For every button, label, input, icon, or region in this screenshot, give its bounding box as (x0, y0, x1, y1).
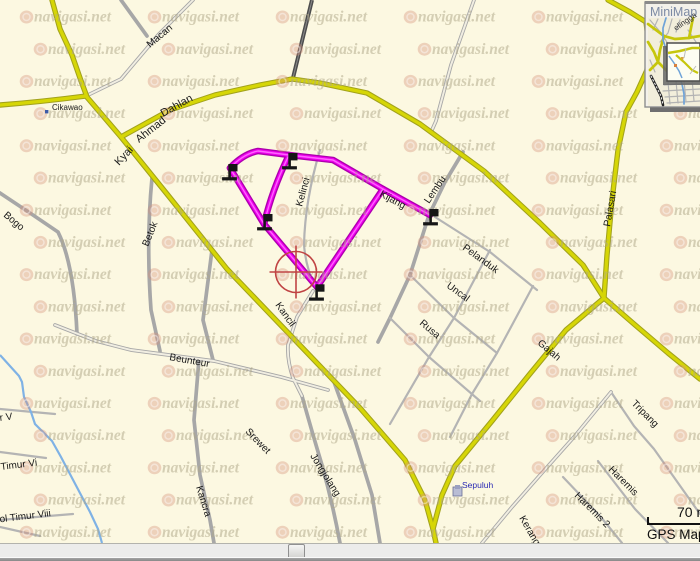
svg-text:GPS Map: GPS Map (647, 527, 700, 542)
svg-text:r V: r V (0, 411, 13, 424)
svg-text:Sepuluh: Sepuluh (462, 480, 493, 490)
svg-text:Cikawao: Cikawao (52, 103, 83, 112)
svg-text:70 m: 70 m (677, 504, 700, 520)
